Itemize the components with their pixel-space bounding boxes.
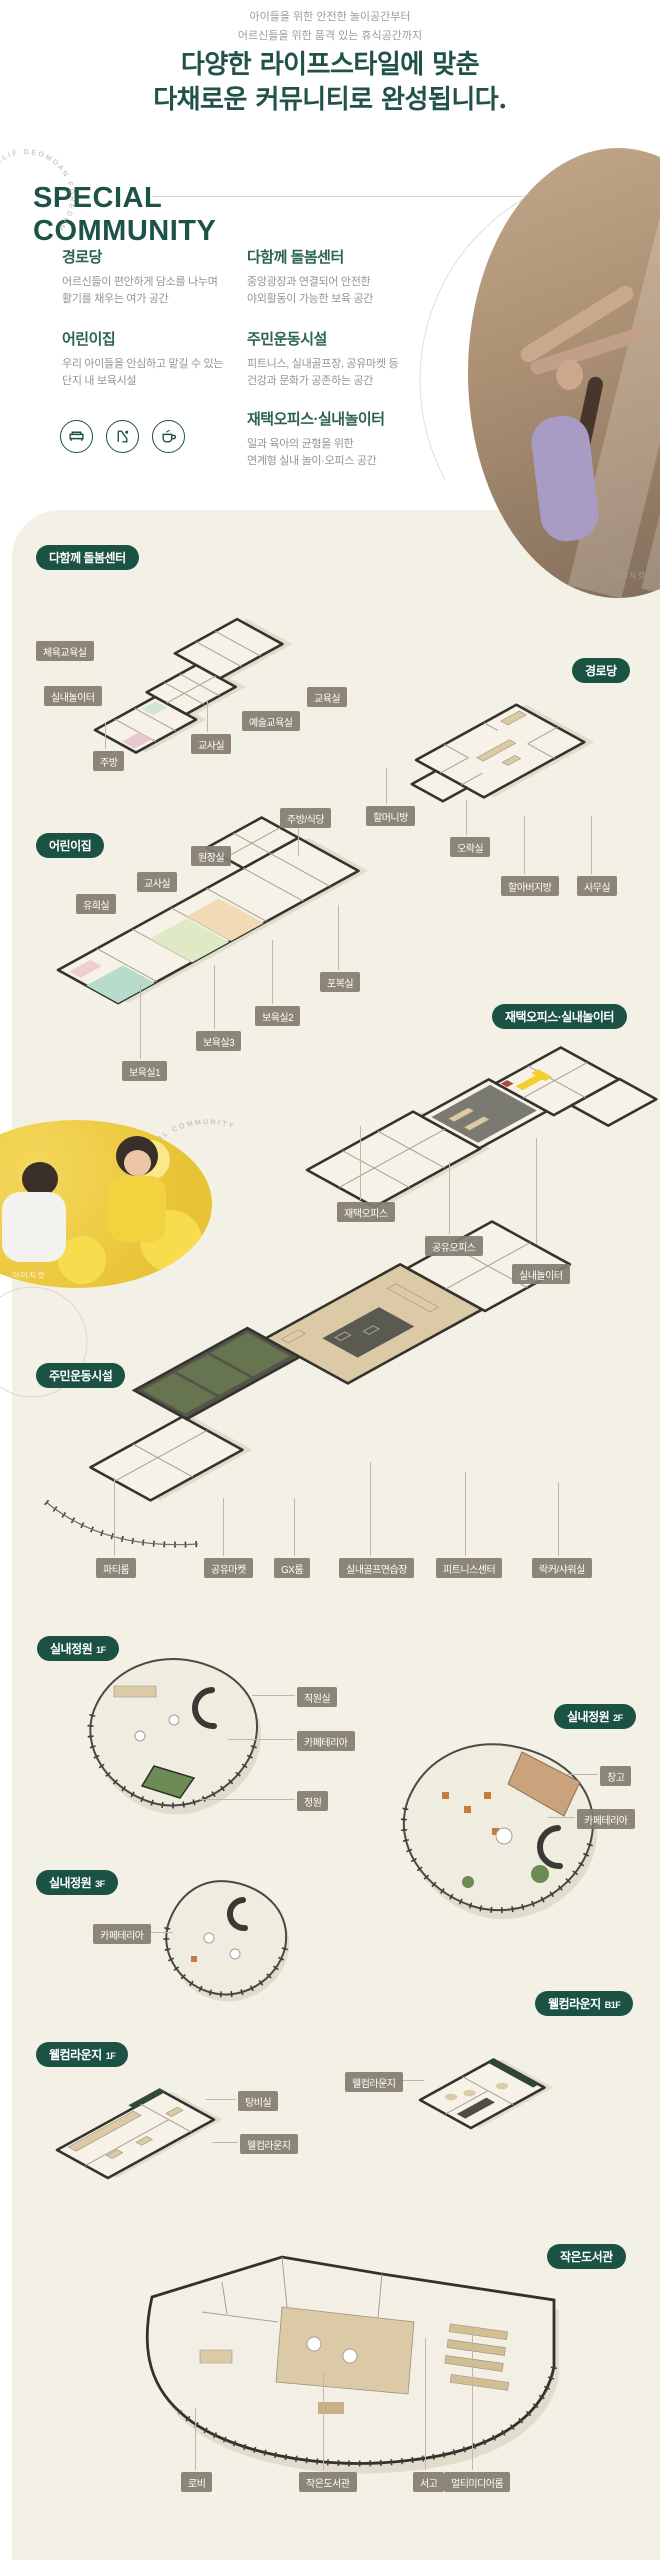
leader-line	[558, 1482, 559, 1556]
floorplan-garden3f	[147, 1872, 317, 2022]
slide-icon	[106, 420, 139, 453]
leader-line	[338, 905, 339, 970]
sofa-icon	[60, 420, 93, 453]
badge-office: 재택오피스·실내놀이터	[492, 1004, 627, 1029]
badge-welcome1f: 웰컴라운지1F	[36, 2042, 128, 2067]
plan-label: 실내놀이터	[44, 686, 102, 706]
page-title: 다양한 라이프스타일에 맞춘 다채로운 커뮤니티로 완성됩니다.	[0, 48, 660, 118]
svg-text:ELIF GEOMDAN FOREDUM: ELIF GEOMDAN FOREDUM	[0, 149, 75, 233]
leader-line	[323, 2372, 324, 2470]
plan-label: 오락실	[450, 837, 490, 857]
plan-label: 유희실	[76, 894, 116, 914]
leader-line	[228, 1739, 295, 1740]
feature-desc: 우리 아이들을 안심하고 맡길 수 있는 단지 내 보육시설	[62, 356, 252, 389]
child-hair	[22, 1162, 58, 1196]
plan-label: 공유오피스	[425, 1236, 483, 1256]
floorplan-library	[82, 2252, 587, 2507]
feature-title: 어린이집	[62, 328, 252, 349]
leader-line	[140, 985, 141, 1059]
plan-label: 할머니방	[366, 806, 415, 826]
figure-head	[556, 360, 583, 390]
leader-line	[200, 1799, 295, 1800]
plan-label: 창고	[600, 1766, 631, 1786]
plan-label: 서고	[413, 2472, 444, 2492]
coffee-cup-icon	[152, 420, 185, 453]
badge-gyeongrodang: 경로당	[572, 658, 630, 683]
badge-eorinijip: 어린이집	[36, 833, 104, 858]
subtitle-line2: 어르신들을 위한 품격 있는 휴식공간까지	[0, 27, 660, 46]
plan-label: 원장실	[191, 846, 231, 866]
plan-label: 주방	[93, 751, 124, 771]
feature-gyeongrodang: 경로당 어르신들이 편안하게 담소를 나누며 활기를 채우는 여가 공간	[62, 246, 252, 307]
plan-label: 공유마켓	[204, 1558, 253, 1578]
plan-label: 정원	[297, 1791, 328, 1811]
plan-label: 교육실	[307, 687, 347, 707]
leader-line	[214, 965, 215, 1029]
leader-line	[212, 2142, 238, 2143]
leader-line	[386, 768, 387, 804]
plan-label: 락커/샤워실	[532, 1558, 592, 1578]
plan-label: 멀티미디어룸	[444, 2472, 510, 2492]
feature-icons	[60, 420, 185, 453]
leader-line	[360, 1126, 361, 1200]
plan-label: 피트니스센터	[436, 1558, 502, 1578]
plan-label: 교사실	[137, 872, 177, 892]
child-dress	[108, 1176, 166, 1242]
plan-label: 할아버지방	[501, 876, 559, 896]
leader-line	[252, 1695, 295, 1696]
plan-label: 재택오피스	[337, 1202, 395, 1222]
plan-label: 보육실3	[196, 1031, 241, 1051]
subtitle-line1: 아이들을 위한 안전한 놀이공간부터	[0, 8, 660, 27]
image-caption: 이미지컷	[612, 570, 645, 581]
leader-line	[536, 1138, 537, 1262]
leader-line	[195, 2408, 196, 2470]
leader-line	[591, 816, 592, 874]
floorplan-welcomeb1f	[392, 2016, 582, 2166]
plan-label: 작은도서관	[299, 2472, 357, 2492]
leader-line	[449, 1162, 450, 1234]
leader-line	[465, 1472, 466, 1556]
badge-garden3f: 실내정원3F	[36, 1870, 118, 1895]
feature-eorinijip: 어린이집 우리 아이들을 안심하고 맡길 수 있는 단지 내 보육시설	[62, 328, 252, 389]
leader-line	[114, 1478, 115, 1556]
badge-library: 작은도서관	[547, 2244, 626, 2269]
plan-label: 카페테리아	[93, 1924, 151, 1944]
leader-line	[206, 2099, 236, 2100]
plan-label: 체육교육실	[36, 641, 94, 661]
child-face	[124, 1150, 151, 1176]
plan-label: 보육실1	[122, 1061, 167, 1081]
title-line2: 다채로운 커뮤니티로 완성됩니다.	[0, 83, 660, 118]
circular-stamp: ELIF GEOMDAN FOREDUM	[0, 136, 88, 260]
header-subtitle: 아이들을 위한 안전한 놀이공간부터 어르신들을 위한 품격 있는 휴식공간까지	[0, 8, 660, 47]
leader-line	[272, 940, 273, 1004]
leader-line	[370, 1462, 371, 1556]
badge-welcomeb1f: 웰컴라운지B1F	[535, 1991, 633, 2016]
leader-line	[298, 826, 299, 856]
badge-dolbom: 다함께 돌봄센터	[36, 545, 139, 570]
stamp-text: ELIF GEOMDAN FOREDUM	[0, 149, 75, 233]
feature-title: 경로당	[62, 246, 252, 267]
plan-label: 탕비실	[238, 2091, 278, 2111]
leader-line	[566, 1774, 598, 1775]
child-shirt	[2, 1192, 66, 1262]
leader-line	[207, 700, 208, 732]
plan-label: 교사실	[191, 734, 231, 754]
plan-label: 직원실	[297, 1687, 337, 1707]
title-line1: 다양한 라이프스타일에 맞춘	[0, 48, 660, 83]
leader-line	[223, 1498, 224, 1556]
leader-line	[105, 722, 106, 749]
plan-label: 파티룸	[96, 1558, 136, 1578]
badge-garden1f: 실내정원1F	[37, 1636, 119, 1661]
floorplan-garden1f	[62, 1648, 307, 1843]
plan-label: 카페테리아	[577, 1809, 635, 1829]
leader-line	[472, 2330, 473, 2470]
plan-label: 보육실2	[255, 1006, 300, 1026]
plan-label: 웰컴라운지	[240, 2134, 298, 2154]
plan-label: 실내골프연습장	[339, 1558, 414, 1578]
plan-label: 실내놀이터	[512, 1264, 570, 1284]
leader-line	[425, 2338, 426, 2470]
image-caption: 이미지컷	[12, 1270, 45, 1281]
plan-label: 주방/식당	[280, 808, 331, 828]
plan-label: 사무실	[577, 876, 617, 896]
plan-label: GX룸	[274, 1558, 310, 1578]
plan-label: 웰컴라운지	[345, 2072, 403, 2092]
badge-garden2f: 실내정원2F	[554, 1704, 636, 1729]
leader-line	[524, 816, 525, 874]
community-brochure-page: 아이들을 위한 안전한 놀이공간부터 어르신들을 위한 품격 있는 휴식공간까지…	[0, 0, 660, 2560]
plan-label: 예술교육실	[242, 711, 300, 731]
feature-desc: 어르신들이 편안하게 담소를 나누며 활기를 채우는 여가 공간	[62, 274, 252, 307]
plan-label: 로비	[181, 2472, 212, 2492]
leader-line	[294, 1498, 295, 1556]
badge-sports: 주민운동시설	[36, 1363, 125, 1388]
leader-line	[548, 1817, 575, 1818]
plan-label: 포복실	[320, 972, 360, 992]
plan-label: 카페테리아	[297, 1731, 355, 1751]
leader-line	[466, 800, 467, 835]
